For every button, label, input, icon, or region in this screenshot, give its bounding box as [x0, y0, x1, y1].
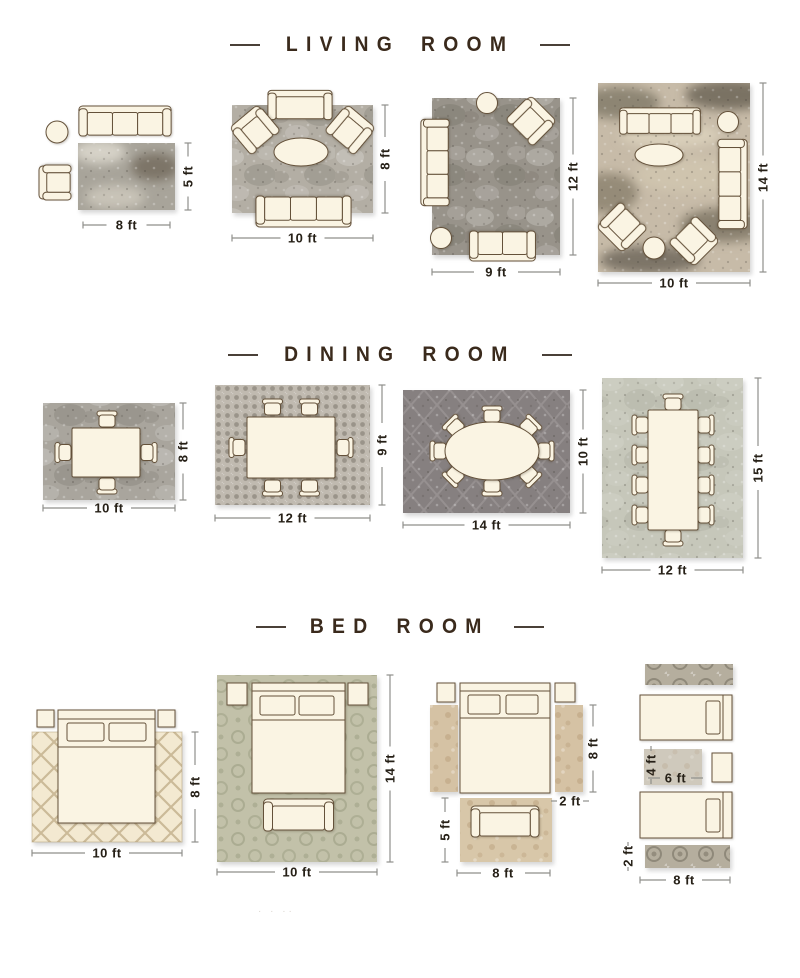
bed-room-title: BED ROOM [310, 615, 490, 639]
dimension-label: 5 ft [181, 166, 196, 188]
living-layout-9x12: 9 ft 12 ft [405, 85, 590, 290]
sofa [256, 196, 351, 227]
headboard [723, 695, 732, 740]
dining-chair [698, 475, 714, 495]
dining-chair [97, 478, 117, 494]
dimension-label: 10 ft [659, 276, 688, 291]
dimension-label: 15 ft [751, 453, 766, 482]
dining-layout-12x9: 12 ft 9 ft [205, 375, 395, 530]
sofa [620, 108, 701, 134]
bench [264, 799, 334, 831]
dining-table [648, 410, 698, 530]
dining-chair [300, 480, 320, 496]
dimension-label: 14 ft [472, 518, 501, 533]
dimension-label: 10 ft [282, 865, 311, 880]
title-dash-right [542, 354, 572, 356]
dining-chair [632, 505, 648, 525]
dining-table [445, 422, 539, 480]
bedroom-layout-10x14: 10 ft 14 ft [195, 660, 405, 888]
title-dash-right [514, 626, 544, 628]
dimension-label: 8 ft [378, 148, 393, 170]
height-dimension: 12 ft [566, 98, 581, 255]
width-dimension: 10 ft [598, 276, 750, 291]
loveseat [470, 231, 536, 261]
runner-height-dimension: 2 ft [621, 842, 636, 871]
headboard [460, 683, 550, 691]
width-dimension: 8 ft [83, 218, 170, 233]
bench [471, 806, 539, 837]
dimension-label: 4 ft [644, 754, 659, 776]
height-dimension: 8 ft [378, 105, 393, 213]
living-layout-8x5: 8 ft 5 ft [25, 92, 215, 247]
bed [252, 683, 345, 793]
width-dimension: 10 ft [43, 501, 175, 516]
height-dimension: 14 ft [756, 83, 771, 272]
bedroom-layout-10x8: 10 ft 8 ft [15, 690, 215, 875]
side-table [718, 112, 739, 133]
nightstand [712, 753, 732, 782]
section-title-living: LIVING ROOM [0, 33, 800, 57]
nightstand [555, 683, 575, 702]
rug-size-guide-infographic: LIVING ROOM DINING ROOM BED ROOM [0, 0, 800, 978]
runner-width-dimension: 2 ft [551, 794, 589, 809]
dining-table [247, 417, 335, 478]
title-dash-right [540, 44, 570, 46]
bed [58, 710, 155, 823]
dimension-label: 9 ft [485, 265, 507, 280]
dimension-label: 14 ft [383, 754, 398, 783]
height-dimension: 5 ft [181, 143, 196, 210]
dining-chair [141, 443, 157, 463]
dining-chair [698, 415, 714, 435]
dining-chair [632, 415, 648, 435]
height-dimension: 14 ft [383, 675, 398, 862]
dimension-label: 10 ft [92, 846, 121, 861]
bedroom-layout-runners: 8 ft 2 ft 5 ft 8 ft [420, 665, 620, 890]
dimension-label: 12 ft [566, 162, 581, 191]
foot-rug-height-dimension: 5 ft [438, 798, 453, 862]
rug [74, 140, 179, 210]
dining-chair [663, 530, 683, 546]
width-dimension: 10 ft [217, 865, 377, 880]
dimension-label: 2 ft [621, 845, 636, 867]
dimension-label: 14 ft [756, 163, 771, 192]
dimension-label: 8 ft [492, 866, 514, 881]
pillow [299, 696, 334, 715]
dimension-label: 12 ft [658, 563, 687, 578]
dining-chair [229, 438, 245, 458]
side-table [477, 93, 498, 114]
nightstand [437, 683, 455, 702]
height-dimension: 8 ft [176, 403, 191, 500]
width-dimension: 9 ft [432, 265, 560, 280]
runner-rug [430, 705, 458, 792]
bed [640, 695, 732, 740]
runner-rug [645, 664, 733, 685]
dining-chair [482, 406, 502, 422]
runner-rug [645, 845, 730, 868]
dining-chair [482, 480, 502, 496]
dimension-label: 10 ft [94, 501, 123, 516]
bed [640, 792, 732, 838]
nightstand [348, 683, 368, 705]
living-room-title: LIVING ROOM [286, 33, 514, 57]
bedroom-layout-twin-beds: 4 ft 6 ft 2 ft 8 ft [615, 650, 800, 895]
bed [460, 683, 550, 793]
pillow [468, 695, 500, 714]
dining-chair [300, 399, 320, 415]
loveseat [268, 90, 332, 119]
dimension-label: 5 ft [438, 819, 453, 841]
sofa [421, 119, 449, 205]
sofa [79, 106, 171, 136]
height-dimension: 15 ft [751, 378, 766, 558]
pillow [109, 723, 146, 741]
dimension-label: 2 ft [559, 794, 581, 809]
dining-chair [698, 445, 714, 465]
headboard [252, 683, 345, 691]
dimension-label: 12 ft [278, 511, 307, 526]
width-dimension: 10 ft [232, 231, 373, 246]
dining-chair [263, 399, 283, 415]
dining-layout-12x15: 12 ft 15 ft [595, 370, 790, 600]
headboard [58, 710, 155, 719]
dimension-label: 10 ft [288, 231, 317, 246]
section-title-dining: DINING ROOM [0, 343, 800, 367]
dining-table [72, 428, 140, 477]
height-dimension: 8 ft [586, 705, 601, 792]
dimension-label: 8 ft [673, 873, 695, 888]
width-dimension: 12 ft [602, 563, 743, 578]
side-table [46, 121, 68, 143]
dimension-label: 8 ft [116, 218, 138, 233]
living-layout-10x8: 10 ft 8 ft [215, 85, 400, 260]
faint-marks: · · ·· [258, 906, 295, 917]
width-dimension: 8 ft [640, 873, 730, 888]
dimension-label: 8 ft [176, 441, 191, 463]
width-dimension: 8 ft [457, 866, 550, 881]
width-dimension: 14 ft [403, 518, 570, 533]
pillow [506, 695, 538, 714]
coffee-table [635, 144, 683, 166]
width-dimension: 12 ft [215, 511, 370, 526]
section-title-bedroom: BED ROOM [0, 615, 800, 639]
chaise-chair [39, 165, 71, 200]
dining-chair [698, 505, 714, 525]
dining-layout-10x8: 10 ft 8 ft [25, 385, 210, 530]
dining-chair [97, 411, 117, 427]
dining-chair [632, 445, 648, 465]
pillow [706, 701, 720, 734]
nightstand [158, 710, 175, 727]
dining-chair [55, 443, 71, 463]
living-layout-10x14: 10 ft 14 ft [590, 75, 795, 295]
dining-chair [430, 441, 446, 461]
height-dimension: 9 ft [375, 385, 390, 505]
dimension-label: 6 ft [665, 771, 687, 786]
title-dash-left [256, 626, 286, 628]
title-dash-left [228, 354, 258, 356]
runner-rug [555, 705, 583, 792]
ottoman [643, 237, 665, 259]
dining-chair [263, 480, 283, 496]
dining-chair [663, 394, 683, 410]
dining-room-title: DINING ROOM [284, 343, 516, 367]
dining-chair [538, 441, 554, 461]
dining-layout-14x10: 14 ft 10 ft [398, 375, 593, 535]
dimension-label: 8 ft [586, 738, 601, 760]
headboard [723, 792, 732, 838]
dining-chair [632, 475, 648, 495]
dimension-label: 9 ft [375, 434, 390, 456]
coffee-table [274, 138, 328, 166]
pillow [260, 696, 295, 715]
sofa [718, 139, 747, 228]
height-dimension: 10 ft [576, 390, 591, 513]
pillow [67, 723, 104, 741]
width-dimension: 10 ft [32, 846, 182, 861]
nightstand [227, 683, 247, 705]
dining-chair [337, 438, 353, 458]
nightstand [37, 710, 54, 727]
dimension-label: 10 ft [576, 437, 591, 466]
pillow [706, 799, 720, 832]
title-dash-left [230, 44, 260, 46]
side-table [431, 228, 452, 249]
